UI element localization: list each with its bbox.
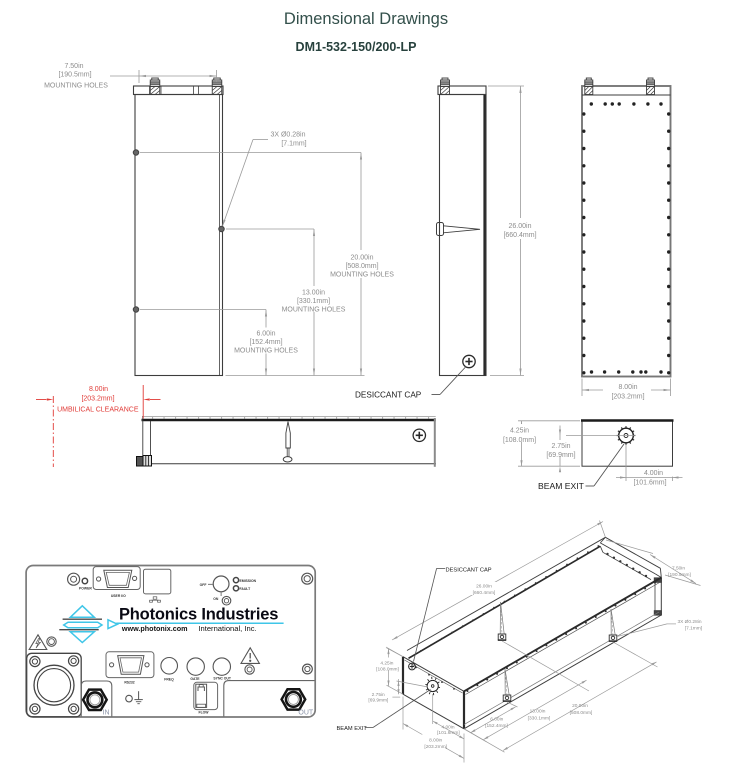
svg-text:OUT: OUT — [298, 710, 314, 717]
svg-text:DM1-532-150/200-LP: DM1-532-150/200-LP — [296, 40, 417, 54]
svg-text:[108.0mm]: [108.0mm] — [376, 667, 399, 673]
svg-text:8.00in: 8.00in — [618, 384, 637, 391]
svg-text:[203.2mm]: [203.2mm] — [81, 396, 114, 403]
svg-text:MOUNTING HOLES: MOUNTING HOLES — [44, 83, 108, 90]
svg-text:UMBILICAL CLEARANCE: UMBILICAL CLEARANCE — [57, 407, 139, 414]
svg-text:3X Ø0.28in: 3X Ø0.28in — [270, 132, 305, 139]
svg-text:13.00in: 13.00in — [530, 709, 546, 715]
svg-text:International, Inc.: International, Inc. — [198, 624, 256, 633]
svg-text:FLOW: FLOW — [199, 711, 210, 715]
svg-text:6.00in: 6.00in — [490, 716, 503, 722]
svg-text:[152.4mm]: [152.4mm] — [249, 339, 282, 346]
svg-text:20.00in: 20.00in — [572, 703, 588, 709]
svg-text:[660.4mm]: [660.4mm] — [473, 590, 496, 596]
svg-text:POWER: POWER — [79, 587, 92, 591]
svg-text:26.00in: 26.00in — [476, 584, 492, 590]
svg-text:3X Ø0.28in: 3X Ø0.28in — [677, 619, 701, 625]
svg-text:ON: ON — [213, 597, 219, 601]
svg-text:[101.6mm]: [101.6mm] — [633, 480, 666, 487]
svg-text:[69.9mm]: [69.9mm] — [546, 452, 575, 459]
svg-text:[203.2mm]: [203.2mm] — [424, 744, 447, 750]
svg-text:4.25in: 4.25in — [510, 428, 529, 435]
svg-text:2.75in: 2.75in — [372, 692, 385, 698]
svg-text:[7.1mm]: [7.1mm] — [685, 626, 702, 632]
svg-text:[69.9mm]: [69.9mm] — [368, 697, 388, 703]
svg-text:FREQ: FREQ — [164, 678, 174, 682]
svg-text:4.00in: 4.00in — [441, 724, 454, 730]
svg-text:[330.1mm]: [330.1mm] — [297, 298, 330, 305]
svg-text:RS232: RS232 — [124, 680, 134, 684]
svg-text:DESICCANT CAP: DESICCANT CAP — [446, 567, 492, 573]
svg-text:MOUNTING HOLES: MOUNTING HOLES — [234, 348, 298, 355]
svg-text:8.00in: 8.00in — [429, 738, 442, 744]
svg-text:20.00in: 20.00in — [351, 255, 374, 262]
svg-text:EMISSION: EMISSION — [240, 579, 257, 583]
svg-text:[190.5mm]: [190.5mm] — [58, 72, 91, 79]
svg-text:6.00in: 6.00in — [256, 331, 275, 338]
svg-text:4.25in: 4.25in — [380, 660, 393, 666]
svg-text:4.00in: 4.00in — [644, 470, 663, 477]
svg-text:www.photonix.com: www.photonix.com — [121, 624, 188, 633]
svg-text:FAULT: FAULT — [240, 587, 252, 591]
svg-text:IN: IN — [103, 710, 110, 717]
svg-text:7.50in: 7.50in — [64, 63, 83, 70]
svg-text:[508.0mm]: [508.0mm] — [570, 710, 593, 716]
svg-text:[203.2mm]: [203.2mm] — [611, 394, 644, 401]
svg-text:Photonics Industries: Photonics Industries — [119, 606, 278, 624]
svg-text:GATE: GATE — [190, 677, 200, 681]
svg-text:MOUNTING HOLES: MOUNTING HOLES — [282, 307, 346, 314]
svg-text:[190.5mm]: [190.5mm] — [668, 572, 691, 578]
svg-text:[508.0mm]: [508.0mm] — [345, 263, 378, 270]
svg-text:SYNC OUT: SYNC OUT — [213, 677, 231, 681]
svg-text:OFF: OFF — [200, 583, 207, 587]
svg-text:[7.1mm]: [7.1mm] — [281, 141, 306, 148]
svg-text:BEAM EXIT: BEAM EXIT — [538, 481, 585, 491]
svg-text:USER I/O: USER I/O — [111, 594, 126, 598]
svg-text:DESICCANT CAP: DESICCANT CAP — [355, 391, 422, 400]
svg-text:[330.1mm]: [330.1mm] — [528, 716, 551, 722]
svg-text:[101.6mm]: [101.6mm] — [437, 730, 460, 736]
svg-text:[660.4mm]: [660.4mm] — [503, 232, 536, 239]
svg-text:BEAM EXIT: BEAM EXIT — [337, 726, 368, 732]
svg-text:13.00in: 13.00in — [302, 290, 325, 297]
svg-text:8.00in: 8.00in — [89, 386, 108, 393]
svg-text:7.50in: 7.50in — [672, 566, 685, 572]
svg-text:2.75in: 2.75in — [551, 443, 570, 450]
svg-text:MOUNTING HOLES: MOUNTING HOLES — [330, 272, 394, 279]
svg-text:Dimensional Drawings: Dimensional Drawings — [284, 10, 448, 28]
svg-text:26.00in: 26.00in — [509, 223, 532, 230]
svg-text:[108.0mm]: [108.0mm] — [503, 437, 536, 444]
